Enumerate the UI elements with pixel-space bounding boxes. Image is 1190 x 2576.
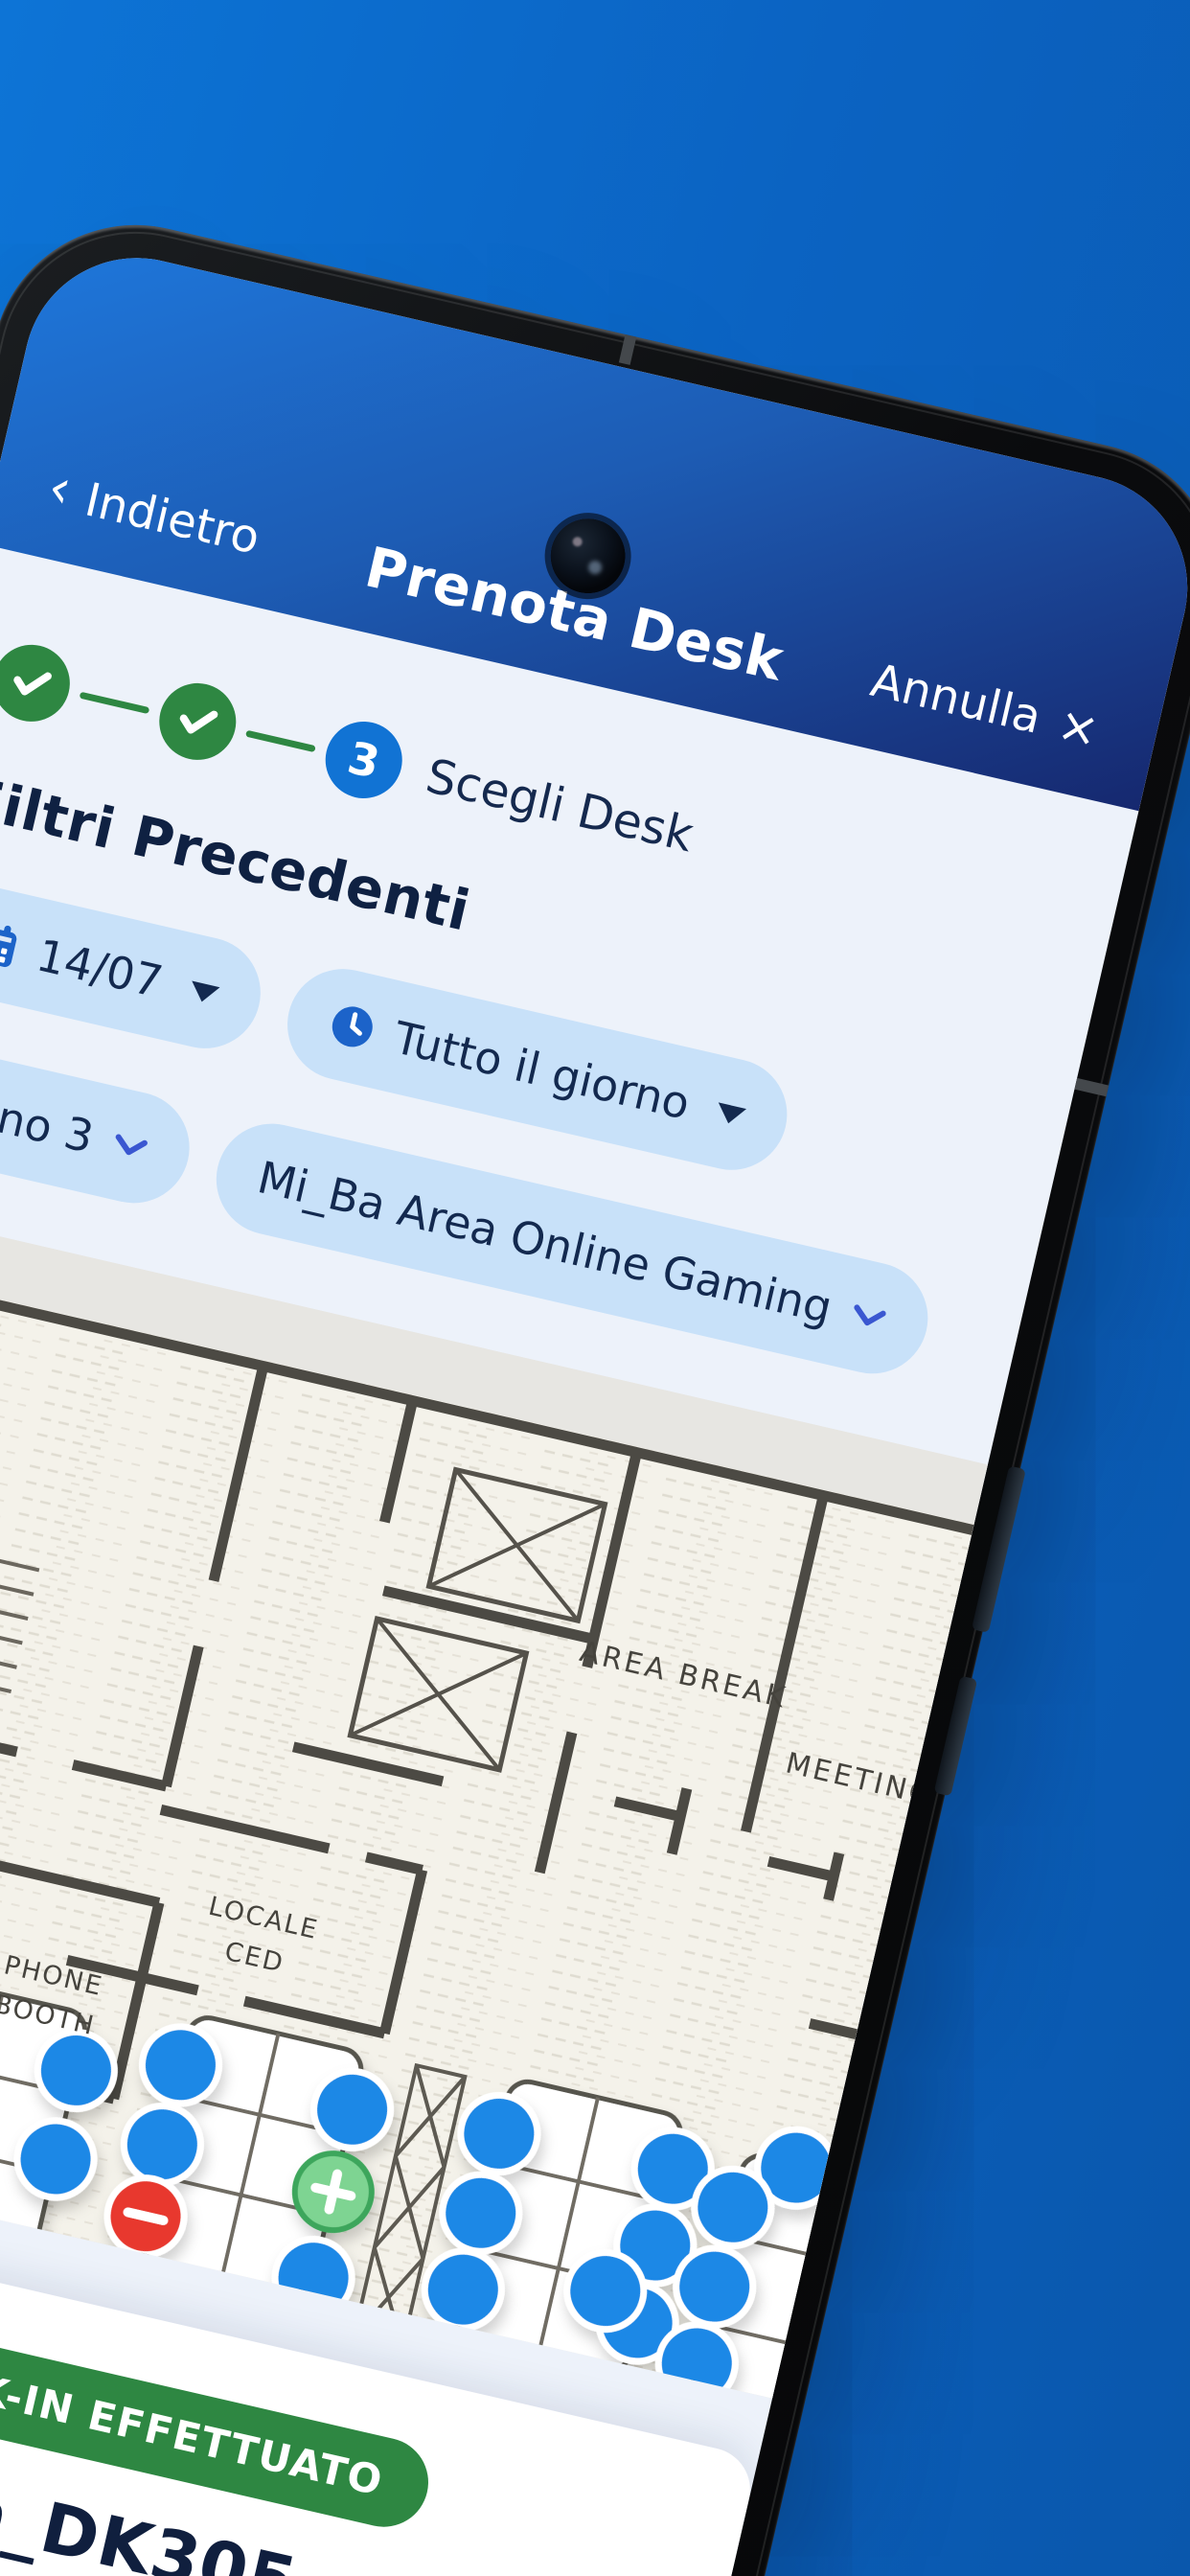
floor-filter-chip[interactable]: Piano 3 <box>0 1038 200 1214</box>
date-chip-value: 14/07 <box>32 929 167 1007</box>
check-icon <box>11 665 53 701</box>
calendar-icon <box>0 916 22 972</box>
cancel-button[interactable]: Annulla × <box>866 653 1105 759</box>
step-2-done <box>151 676 243 768</box>
caret-down-icon <box>188 980 220 1004</box>
chevron-down-icon <box>111 1133 149 1161</box>
step-3-number: 3 <box>343 731 384 789</box>
caret-down-icon <box>715 1102 747 1126</box>
back-chevron-icon: ‹ <box>45 468 75 510</box>
area-chip-value: Mi_Ba Area Online Gaming <box>253 1151 837 1334</box>
antenna-line-top <box>619 334 636 365</box>
cancel-label: Annulla <box>866 654 1046 745</box>
check-icon <box>176 703 218 740</box>
antenna-line-right <box>1074 1078 1109 1096</box>
stepper-connector <box>80 691 150 713</box>
floorplan-map[interactable]: AREA BREAK MEETING LOCALE CED PHONE BOOT… <box>0 1197 988 2398</box>
stepper-connector <box>245 729 316 751</box>
step-3-label: Scegli Desk <box>422 747 698 862</box>
close-icon: × <box>1053 696 1105 759</box>
chevron-down-icon <box>849 1303 887 1332</box>
back-button[interactable]: ‹ Indietro <box>42 464 264 564</box>
time-chip-value: Tutto il giorno <box>389 1011 695 1129</box>
phone-mockup: ‹ Indietro Prenota Desk Annulla × <box>0 196 1190 2576</box>
power-button <box>934 1676 978 1797</box>
step-3-current: 3 <box>318 714 410 806</box>
clock-icon <box>325 1000 380 1055</box>
back-label: Indietro <box>80 473 265 565</box>
floor-chip-value: Piano 3 <box>0 1076 99 1163</box>
date-filter-chip[interactable]: 14/07 <box>0 875 271 1059</box>
step-1-done <box>0 637 78 729</box>
marketing-canvas: ‹ Indietro Prenota Desk Annulla × <box>0 0 1190 2576</box>
